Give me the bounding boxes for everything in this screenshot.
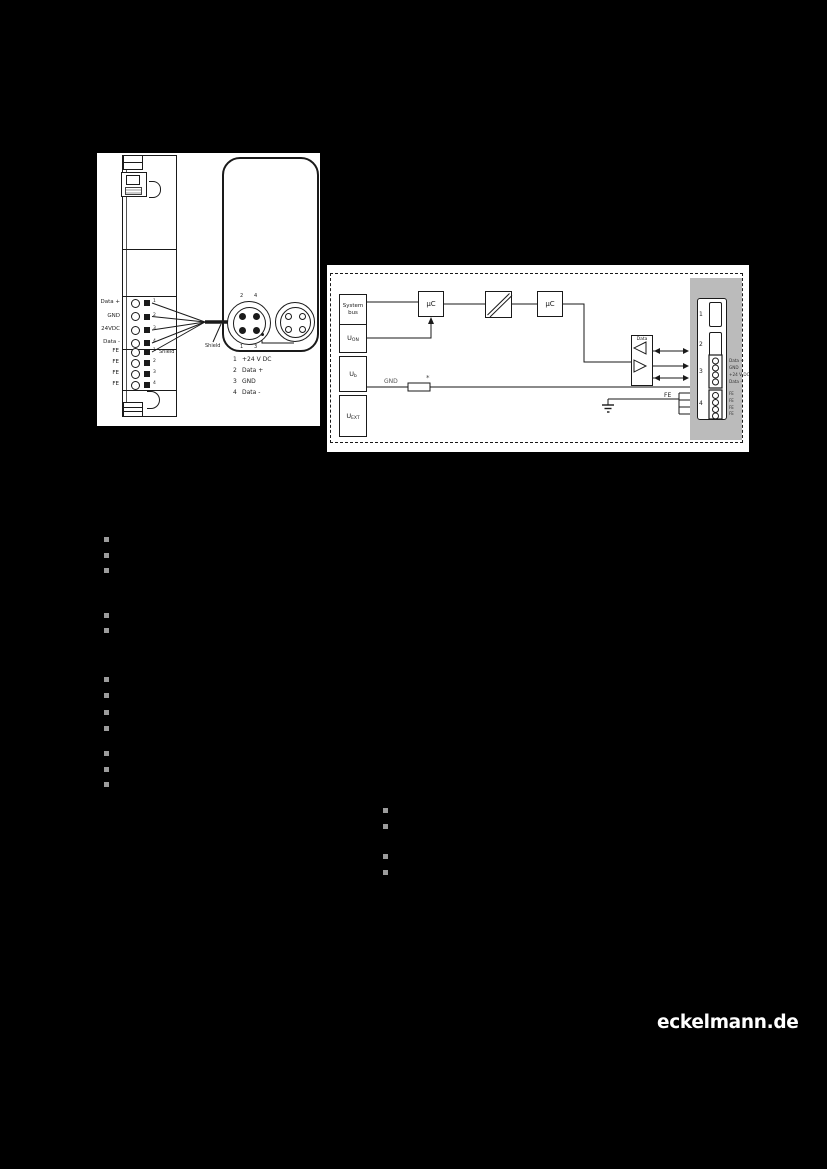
legend-text: Data + xyxy=(242,367,263,374)
signal-label: Data - xyxy=(729,378,749,385)
list-bullet xyxy=(104,726,109,731)
module-latch-window xyxy=(126,175,140,185)
fuse-footnote-mark: * xyxy=(426,374,430,382)
u-on-label: UON xyxy=(347,334,359,343)
fe-screw xyxy=(131,359,140,368)
terminal-screw xyxy=(131,312,140,321)
connector-slot-1 xyxy=(709,302,722,327)
terminal-contact xyxy=(144,340,150,346)
fe-pin-label: FE xyxy=(729,405,734,412)
module-type-label xyxy=(125,187,142,195)
fe-number: 3 xyxy=(153,370,156,375)
connector-number: 1 xyxy=(699,311,703,318)
connector-slot-2 xyxy=(709,332,722,357)
module-top-clip-line xyxy=(124,162,142,163)
terminal-number: 4 xyxy=(153,339,156,344)
terminal-screw xyxy=(131,339,140,348)
terminal-label: Data + xyxy=(98,299,120,305)
connector-number: 3 xyxy=(699,368,703,375)
m12-pin xyxy=(239,327,246,334)
terminal-number: 3 xyxy=(153,326,156,331)
m12-female-socket xyxy=(285,326,292,333)
list-bullet xyxy=(383,854,388,859)
list-bullet xyxy=(104,613,109,618)
fe-pin-label: FE xyxy=(729,398,734,405)
list-bullet xyxy=(104,782,109,787)
legend-row: 3GND xyxy=(233,378,256,385)
fe-number: 4 xyxy=(153,381,156,386)
fe-label: FE xyxy=(105,348,119,354)
fe-number: 1 xyxy=(153,348,156,353)
u-ext-box: UEXT xyxy=(339,395,367,437)
fe-label: FE xyxy=(105,381,119,387)
m12-female-socket xyxy=(285,313,292,320)
pin-number-bottom-left: 1 xyxy=(240,344,243,350)
system-bus-box: System bus xyxy=(339,294,367,325)
terminal-contact xyxy=(144,314,150,320)
terminal-label: Data - xyxy=(98,339,120,345)
list-bullet xyxy=(104,751,109,756)
terminal-number: 2 xyxy=(153,313,156,318)
u-b-box: Ub xyxy=(339,356,367,392)
fe-label: FE xyxy=(105,359,119,365)
module-bottom-clip xyxy=(123,402,143,417)
legend-row: 4Data - xyxy=(233,389,260,396)
connector-fe-labels: FE FE FE FE xyxy=(729,391,734,418)
connector-number: 4 xyxy=(699,400,703,407)
m12-pin xyxy=(253,327,260,334)
module-bottom-clip-line xyxy=(124,411,142,412)
u-on-box: UON xyxy=(339,324,367,353)
list-bullet xyxy=(104,553,109,558)
list-bullet xyxy=(104,568,109,573)
fe-screw xyxy=(131,381,140,390)
m12-female-socket xyxy=(299,313,306,320)
fe-label: FE xyxy=(664,392,671,399)
list-bullet xyxy=(104,767,109,772)
u-b-label: Ub xyxy=(349,370,357,379)
pin-number-top-left: 2 xyxy=(240,293,243,299)
figure-wiring: Data + GND 24VDC Data - 1 2 3 4 FE FE FE… xyxy=(97,153,320,426)
terminal-contact xyxy=(144,327,150,333)
list-bullet xyxy=(104,677,109,682)
terminal-number: 1 xyxy=(153,299,156,304)
fe-contact xyxy=(144,371,150,377)
m12-female-socket xyxy=(299,326,306,333)
fe-pin-label: FE xyxy=(729,411,734,418)
pin-number-bottom-right: 3 xyxy=(254,344,257,350)
list-bullet xyxy=(383,808,388,813)
fe-screw xyxy=(131,370,140,379)
uc-right-box: µC xyxy=(537,291,563,317)
signal-label: Data + xyxy=(729,357,749,364)
list-bullet xyxy=(104,628,109,633)
fe-contact xyxy=(144,360,150,366)
m12-female-inner xyxy=(280,307,311,338)
document-page: Data + GND 24VDC Data - 1 2 3 4 FE FE FE… xyxy=(0,0,827,1169)
data-driver-box: Data xyxy=(631,335,653,386)
legend-text: GND xyxy=(242,378,256,385)
terminal-label: GND xyxy=(98,313,120,319)
list-bullet xyxy=(104,537,109,542)
fe-label: FE xyxy=(105,370,119,376)
isolation-box xyxy=(485,291,512,318)
fe-number: 2 xyxy=(153,359,156,364)
shield-label-module: Shield xyxy=(159,349,174,355)
legend-pin: 1 xyxy=(233,356,242,363)
module-bottom-clip-line xyxy=(124,407,142,408)
figure-block-diagram: System bus UON Ub UEXT µC µC Data xyxy=(327,265,749,452)
uc-left-box: µC xyxy=(418,291,444,317)
legend-pin: 2 xyxy=(233,367,242,374)
legend-row: 1+24 V DC xyxy=(233,356,271,363)
legend-text: Data - xyxy=(242,389,260,396)
fe-contact xyxy=(144,349,150,355)
terminal-label: 24VDC xyxy=(98,326,120,332)
terminal-screw xyxy=(131,299,140,308)
gnd-label: GND xyxy=(384,378,398,385)
fe-screw xyxy=(131,348,140,357)
signal-label: +24 V DC xyxy=(729,371,749,378)
fe-pin-label: FE xyxy=(729,391,734,398)
shield-leader xyxy=(213,324,221,342)
list-bullet xyxy=(104,693,109,698)
list-bullet xyxy=(383,870,388,875)
module-divider xyxy=(122,249,177,250)
list-bullet xyxy=(104,710,109,715)
data-driver-label: Data xyxy=(637,337,648,342)
u-ext-label: UEXT xyxy=(346,412,359,421)
legend-pin: 3 xyxy=(233,378,242,385)
connector-number: 2 xyxy=(699,341,703,348)
shield-label-cable: Shield xyxy=(205,343,220,349)
m12-pin xyxy=(239,313,246,320)
module-divider xyxy=(122,296,177,297)
terminal-contact xyxy=(144,300,150,306)
brand-logo: eckelmann.de xyxy=(657,1012,799,1033)
pin-number-top-right: 4 xyxy=(254,293,257,299)
legend-text: +24 V DC xyxy=(242,356,271,363)
terminal-screw xyxy=(131,326,140,335)
system-bus-label: System bus xyxy=(340,303,366,316)
list-bullet xyxy=(383,824,388,829)
uc-right-label: µC xyxy=(545,300,554,308)
legend-row: 2Data + xyxy=(233,367,263,374)
m12-pin xyxy=(253,313,260,320)
legend-pin: 4 xyxy=(233,389,242,396)
uc-left-label: µC xyxy=(426,300,435,308)
connector-signal-labels: Data + GND +24 V DC Data - xyxy=(729,357,749,385)
fe-contact xyxy=(144,382,150,388)
m12-shield-dot xyxy=(261,333,264,336)
signal-label: GND xyxy=(729,364,749,371)
